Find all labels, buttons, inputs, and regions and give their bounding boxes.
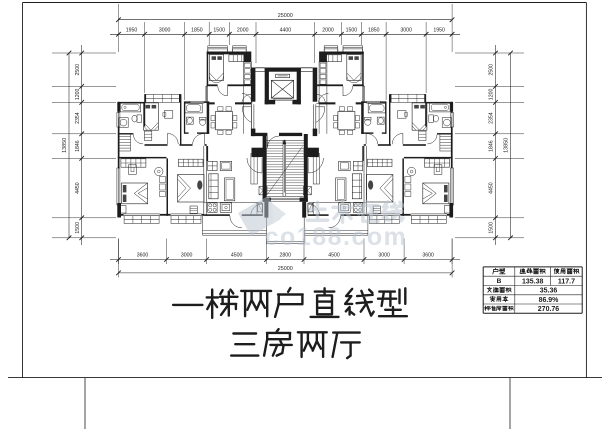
svg-text:1500: 1500 [75,222,81,234]
svg-text:1500: 1500 [213,28,225,34]
svg-text:25000: 25000 [278,266,293,272]
svg-text:13850: 13850 [504,138,510,153]
svg-text:4400: 4400 [280,28,292,34]
svg-text:co188.com: co188.com [265,223,408,251]
svg-text:3000: 3000 [159,28,171,34]
svg-text:13850: 13850 [62,138,68,153]
svg-text:1200: 1200 [489,89,495,101]
svg-text:1850: 1850 [368,28,380,34]
svg-text:1846: 1846 [75,140,81,152]
svg-text:4450: 4450 [489,182,495,194]
svg-text:1200: 1200 [75,89,81,101]
svg-text:270.76: 270.76 [538,306,560,313]
svg-text:2354: 2354 [75,112,81,124]
svg-text:3600: 3600 [422,253,434,259]
svg-text:86.9%: 86.9% [539,297,560,304]
svg-text:1950: 1950 [433,28,445,34]
svg-text:1500: 1500 [489,222,495,234]
svg-text:2354: 2354 [489,112,495,124]
svg-text:2000: 2000 [237,28,249,34]
svg-text:1850: 1850 [191,28,203,34]
svg-text:2000: 2000 [322,28,334,34]
svg-text:1846: 1846 [489,140,495,152]
svg-text:4450: 4450 [75,182,81,194]
svg-text:1500: 1500 [346,28,358,34]
svg-text:1950: 1950 [126,28,138,34]
svg-text:3000: 3000 [400,28,412,34]
svg-text:2800: 2800 [280,253,292,259]
svg-text:3000: 3000 [378,253,390,259]
svg-text:2500: 2500 [489,64,495,76]
svg-text:135.38: 135.38 [522,278,544,285]
svg-text:3600: 3600 [137,253,149,259]
svg-text:25000: 25000 [278,13,293,19]
svg-text:4500: 4500 [231,253,243,259]
svg-text:4500: 4500 [328,253,340,259]
svg-text:2500: 2500 [75,64,81,76]
svg-text:3000: 3000 [181,253,193,259]
svg-text:117.7: 117.7 [558,278,575,285]
svg-text:B: B [497,278,502,285]
svg-text:35.36: 35.36 [540,288,558,295]
